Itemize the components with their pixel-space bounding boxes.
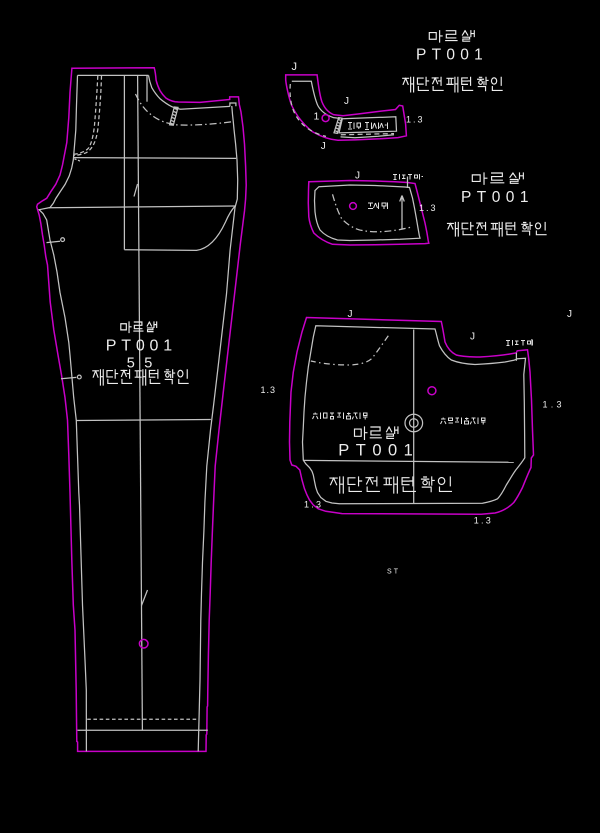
svg-text:J: J [470,332,475,343]
svg-text:J: J [567,309,572,320]
svg-text:1.3: 1.3 [304,500,321,510]
svg-text:1.3: 1.3 [474,516,491,526]
svg-text:ST: ST [387,569,399,576]
svg-text:J: J [344,96,349,107]
svg-text:1.3: 1.3 [543,400,562,410]
svg-text:1: 1 [314,111,320,123]
svg-text:1.3: 1.3 [261,385,276,395]
svg-text:J: J [348,309,353,320]
svg-text:J: J [355,171,360,182]
svg-text:1.3: 1.3 [406,115,423,125]
svg-text:PT001: PT001 [106,338,173,355]
svg-text:1.3: 1.3 [419,203,436,213]
svg-text:J: J [321,141,326,152]
svg-text:J: J [292,61,298,73]
